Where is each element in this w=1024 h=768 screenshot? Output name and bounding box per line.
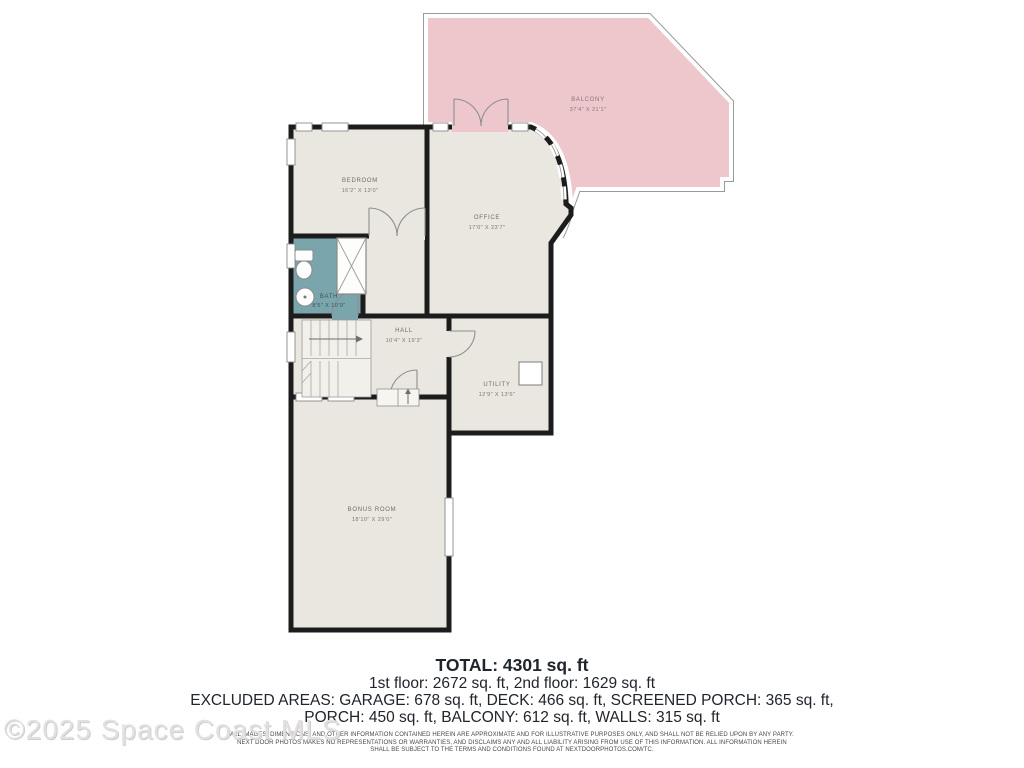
floors-area-text: 1st floor: 2672 sq. ft, 2nd floor: 1629 … [0,675,1024,692]
utility-label: UTILITY [483,382,510,388]
bedroom-window-left [287,139,295,165]
bonus-room-dims: 18'10" X 29'0" [352,517,392,523]
shower [337,238,366,294]
toilet [295,250,313,279]
bath-door-opening [332,312,358,320]
bonus-room-label: BONUS ROOM [348,507,397,513]
excluded-areas-text-1: EXCLUDED AREAS: GARAGE: 678 sq. ft, DECK… [0,692,1024,709]
bonus-entry-step [377,389,419,407]
disclaimer-line-3: SHALL BE SUBJECT TO THE TERMS AND CONDIT… [0,747,1024,755]
bath-label: BATH [320,294,338,300]
bedroom-dims: 16'2" X 13'0" [342,188,379,194]
floor-plan-drawing: BEDROOM 16'2" X 13'0" OFFICE 17'0" X 23'… [0,0,1024,768]
bedroom-label: BEDROOM [342,178,378,184]
office-window-top-2 [512,123,528,131]
bonus-room [291,397,449,630]
balcony-label: BALCONY [571,97,605,103]
office-label: OFFICE [474,215,500,221]
total-area-text: TOTAL: 4301 sq. ft [0,656,1024,675]
floor-plan-page: BEDROOM 16'2" X 13'0" OFFICE 17'0" X 23'… [0,0,1024,768]
office-window-top-1 [433,123,448,131]
hall-dims: 10'4" X 19'3" [386,338,423,344]
utility-dims: 12'9" X 13'6" [479,392,516,398]
bedroom-window-top-2 [322,123,348,131]
closet-room [363,236,427,316]
bath-dims: 8'5" X 10'0" [312,303,345,309]
sink [296,288,314,306]
office-dims: 17'0" X 23'7" [469,225,506,231]
utility-equipment-box [519,362,542,385]
utility-door-opening [445,331,453,357]
hall-window-left [287,332,295,362]
staircase [302,320,371,397]
bedroom-window-top-1 [296,123,312,131]
hall-label: HALL [395,328,413,334]
office-room [427,127,571,318]
bonus-window-right [445,498,453,556]
bath-window-left [287,244,295,268]
mls-watermark: ©2025 Space Coast MLS [4,714,341,746]
balcony-dims: 37'4" X 21'1" [570,107,607,113]
balcony-door-opening [452,121,508,132]
